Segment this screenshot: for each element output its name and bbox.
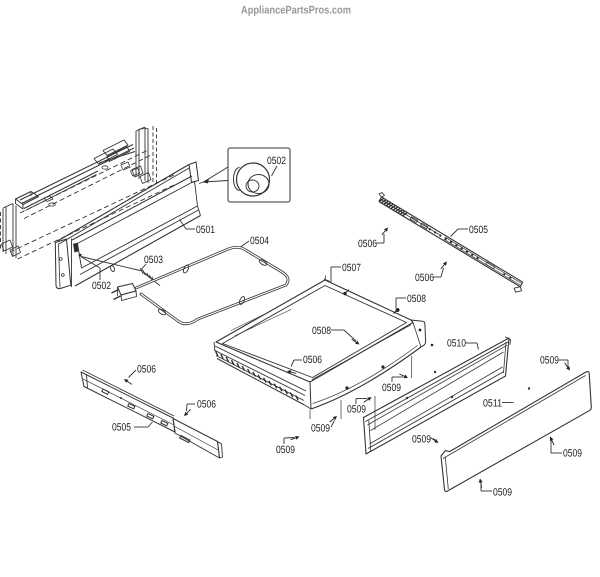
- svg-text:0505: 0505: [112, 422, 131, 434]
- svg-text:0504: 0504: [250, 235, 269, 247]
- svg-text:0509: 0509: [563, 448, 582, 460]
- svg-text:0506: 0506: [137, 364, 156, 376]
- svg-text:AppliancePartsPros.com: AppliancePartsPros.com: [241, 5, 351, 17]
- svg-text:0509: 0509: [493, 487, 512, 499]
- svg-text:0507: 0507: [342, 262, 361, 274]
- svg-text:0511: 0511: [483, 398, 502, 410]
- svg-text:0506: 0506: [197, 399, 216, 411]
- svg-text:0509: 0509: [540, 355, 559, 367]
- svg-text:0509: 0509: [347, 404, 366, 416]
- svg-text:0506: 0506: [303, 354, 322, 366]
- svg-text:0501: 0501: [196, 224, 215, 236]
- svg-text:0508: 0508: [312, 325, 331, 337]
- svg-text:0506: 0506: [415, 272, 434, 284]
- svg-text:0509: 0509: [382, 382, 401, 394]
- svg-text:0509: 0509: [311, 423, 330, 435]
- svg-text:0508: 0508: [407, 293, 426, 305]
- svg-text:0509: 0509: [276, 444, 295, 456]
- svg-text:0509: 0509: [412, 434, 431, 446]
- svg-text:0505: 0505: [469, 224, 488, 236]
- svg-text:0502: 0502: [92, 280, 111, 292]
- svg-text:0503: 0503: [144, 254, 163, 266]
- svg-text:0510: 0510: [447, 338, 466, 350]
- svg-text:0506: 0506: [358, 238, 377, 250]
- svg-text:0502: 0502: [267, 155, 286, 167]
